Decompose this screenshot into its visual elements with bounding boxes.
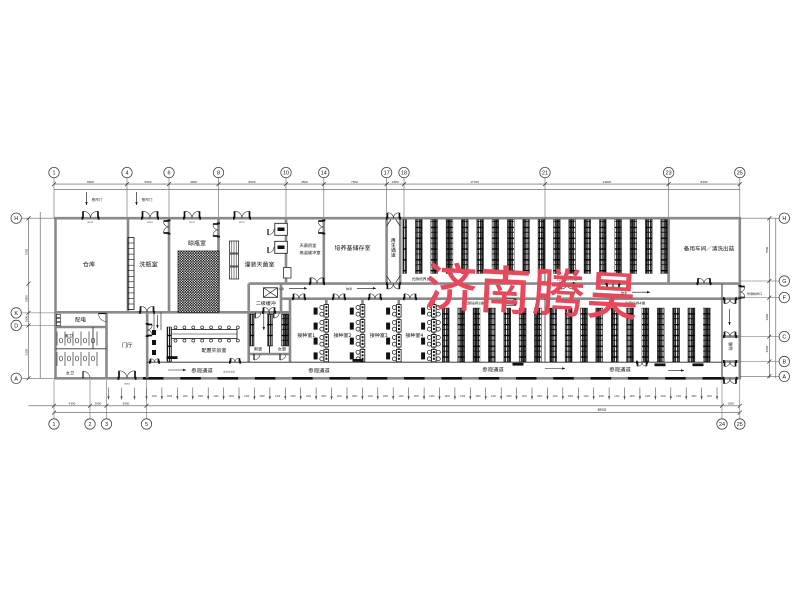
svg-text:2900: 2900 xyxy=(568,396,574,398)
svg-text:M1521: M1521 xyxy=(189,222,195,224)
svg-text:1: 1 xyxy=(53,171,56,177)
svg-text:1400: 1400 xyxy=(337,396,343,398)
svg-text:2900: 2900 xyxy=(630,396,636,398)
svg-text:89932: 89932 xyxy=(598,408,607,412)
svg-text:A: A xyxy=(14,376,18,382)
svg-text:5000: 5000 xyxy=(145,180,152,184)
svg-text:14: 14 xyxy=(321,171,327,177)
svg-text:B: B xyxy=(782,360,786,366)
svg-text:2: 2 xyxy=(89,422,92,428)
svg-text:2900: 2900 xyxy=(414,396,420,398)
svg-text:2900: 2900 xyxy=(198,396,204,398)
svg-text:1400: 1400 xyxy=(152,396,158,398)
svg-text:1400: 1400 xyxy=(676,396,682,398)
svg-text:1800: 1800 xyxy=(392,180,399,184)
svg-text:1400: 1400 xyxy=(460,396,466,398)
svg-text:2000: 2000 xyxy=(95,402,102,406)
svg-text:17700: 17700 xyxy=(470,180,479,184)
svg-text:M1824: M1824 xyxy=(124,384,130,386)
svg-text:1400: 1400 xyxy=(614,396,620,398)
svg-text:K: K xyxy=(14,311,18,317)
svg-text:2900: 2900 xyxy=(321,396,327,398)
svg-text:4: 4 xyxy=(126,171,129,177)
svg-text:25: 25 xyxy=(737,422,743,428)
svg-text:M1521: M1521 xyxy=(239,222,245,224)
svg-text:2900: 2900 xyxy=(537,396,543,398)
svg-text:2900: 2900 xyxy=(599,396,605,398)
svg-text:24: 24 xyxy=(719,422,725,428)
svg-text:8300: 8300 xyxy=(701,180,708,184)
svg-text:7500: 7500 xyxy=(351,180,358,184)
svg-text:2900: 2900 xyxy=(167,396,173,398)
svg-text:1400: 1400 xyxy=(398,396,404,398)
svg-text:3900: 3900 xyxy=(765,313,769,320)
svg-text:1400: 1400 xyxy=(213,396,219,398)
svg-text:2900: 2900 xyxy=(661,396,667,398)
svg-text:1: 1 xyxy=(53,422,56,428)
svg-text:2900: 2900 xyxy=(352,396,358,398)
svg-text:10: 10 xyxy=(283,171,289,177)
svg-text:2900: 2900 xyxy=(445,396,451,398)
svg-text:1400: 1400 xyxy=(583,396,589,398)
svg-text:C: C xyxy=(782,335,786,341)
svg-text:1400: 1400 xyxy=(553,396,559,398)
svg-text:8: 8 xyxy=(217,171,220,177)
svg-text:8000: 8000 xyxy=(249,180,256,184)
svg-text:4300: 4300 xyxy=(69,402,76,406)
svg-text:3: 3 xyxy=(105,422,108,428)
svg-text:1400: 1400 xyxy=(275,396,281,398)
svg-text:6: 6 xyxy=(168,171,171,177)
svg-text:1400: 1400 xyxy=(707,396,713,398)
svg-text:1400: 1400 xyxy=(429,396,435,398)
svg-text:4500: 4500 xyxy=(301,180,308,184)
svg-text:1400: 1400 xyxy=(491,396,497,398)
svg-text:D: D xyxy=(14,323,18,329)
svg-text:25: 25 xyxy=(737,171,743,177)
svg-text:2900: 2900 xyxy=(506,396,512,398)
svg-text:14600: 14600 xyxy=(602,180,611,184)
svg-text:5000: 5000 xyxy=(123,402,130,406)
svg-text:21: 21 xyxy=(542,171,548,177)
svg-text:2900: 2900 xyxy=(475,396,481,398)
svg-text:1800: 1800 xyxy=(24,315,28,322)
svg-text:1400: 1400 xyxy=(306,396,312,398)
svg-text:4000: 4000 xyxy=(190,180,197,184)
svg-text:23: 23 xyxy=(666,171,672,177)
svg-text:H: H xyxy=(14,216,18,222)
svg-text:M1821: M1821 xyxy=(88,222,94,224)
svg-text:17: 17 xyxy=(384,171,390,177)
svg-text:2500: 2500 xyxy=(765,345,769,352)
svg-text:H: H xyxy=(782,216,786,222)
svg-text:7200: 7200 xyxy=(24,248,28,255)
svg-text:1800: 1800 xyxy=(728,402,734,406)
svg-text:M1821: M1821 xyxy=(147,222,153,224)
svg-text:7500: 7500 xyxy=(765,246,769,253)
svg-text:18: 18 xyxy=(401,171,407,177)
svg-text:1400: 1400 xyxy=(244,396,250,398)
svg-text:6300: 6300 xyxy=(24,348,28,355)
svg-text:2900: 2900 xyxy=(691,396,697,398)
svg-text:9600: 9600 xyxy=(87,180,94,184)
svg-text:2900: 2900 xyxy=(383,396,389,398)
svg-text:5: 5 xyxy=(145,422,148,428)
svg-text:5000: 5000 xyxy=(24,295,28,302)
svg-text:G: G xyxy=(782,279,786,285)
svg-text:2900: 2900 xyxy=(290,396,296,398)
svg-text:1400: 1400 xyxy=(368,396,374,398)
svg-text:1400: 1400 xyxy=(182,396,188,398)
svg-text:2900: 2900 xyxy=(260,396,266,398)
svg-text:A: A xyxy=(782,374,786,380)
svg-text:2900: 2900 xyxy=(229,396,235,398)
svg-text:1400: 1400 xyxy=(645,396,651,398)
svg-text:1400: 1400 xyxy=(522,396,528,398)
